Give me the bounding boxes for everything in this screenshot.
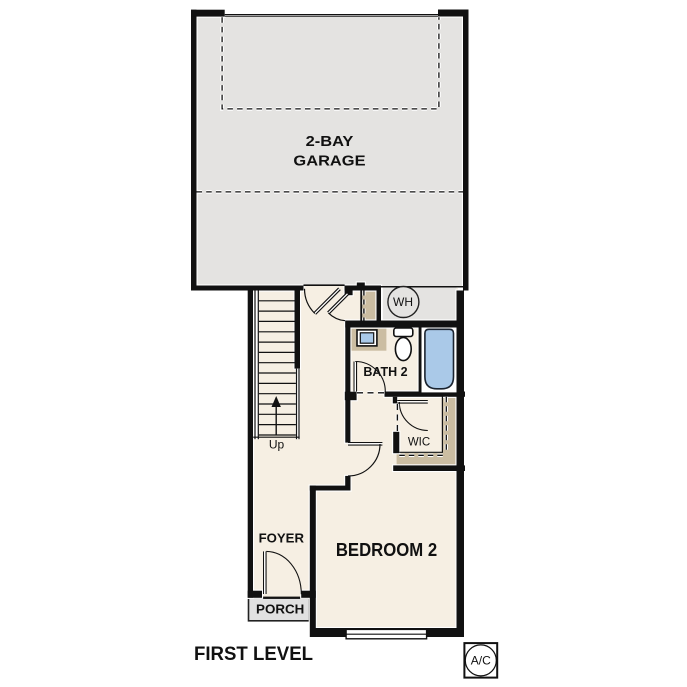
svg-text:WH: WH [393,295,413,309]
svg-text:2-BAY: 2-BAY [306,134,354,150]
svg-text:Up: Up [269,438,285,452]
svg-text:BATH 2: BATH 2 [363,365,407,379]
svg-text:BEDROOM 2: BEDROOM 2 [336,539,437,560]
svg-text:PORCH: PORCH [256,602,304,617]
svg-text:FIRST LEVEL: FIRST LEVEL [194,643,313,665]
svg-text:A/C: A/C [471,653,491,667]
svg-text:WIC: WIC [408,437,430,449]
svg-text:FOYER: FOYER [259,531,305,546]
svg-text:GARAGE: GARAGE [293,154,365,170]
